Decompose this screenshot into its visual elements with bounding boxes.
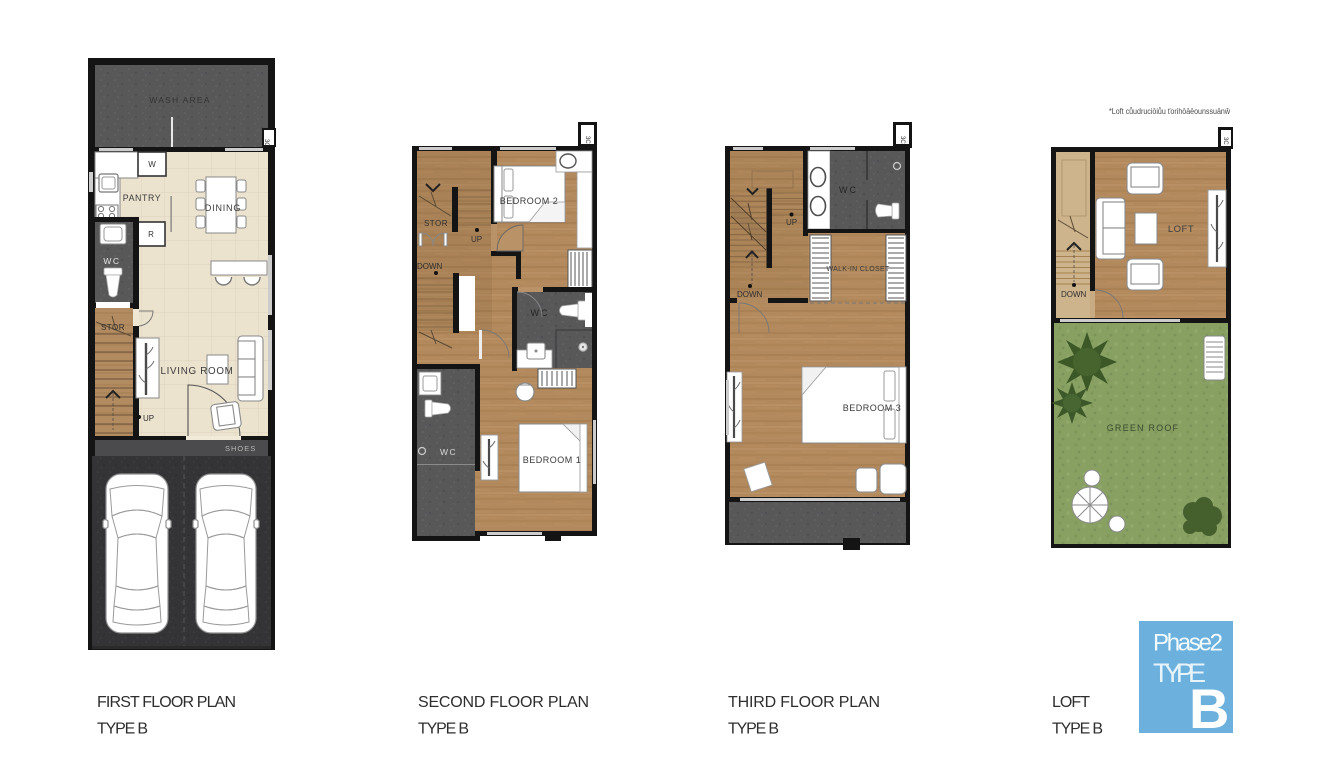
svg-text:W: W — [148, 160, 156, 169]
svg-text:UP: UP — [143, 414, 154, 423]
svg-text:UP: UP — [786, 218, 797, 227]
svg-text:LIVING ROOM: LIVING ROOM — [160, 366, 233, 377]
svg-text:WASH AREA: WASH AREA — [149, 95, 211, 105]
svg-text:Phase2: Phase2 — [1153, 630, 1223, 657]
svg-text:TYPE B: TYPE B — [97, 721, 148, 738]
svg-text:WALK-IN CLOSET: WALK-IN CLOSET — [826, 266, 889, 273]
svg-text:BEDROOM 3: BEDROOM 3 — [843, 403, 902, 413]
svg-text:TYPE B: TYPE B — [728, 721, 779, 738]
svg-text:3C: 3C — [1222, 137, 1228, 145]
svg-text:FIRST FLOOR PLAN: FIRST FLOOR PLAN — [97, 694, 236, 711]
svg-text:SECOND FLOOR PLAN: SECOND FLOOR PLAN — [418, 694, 589, 711]
svg-text:WC: WC — [103, 256, 120, 266]
svg-text:LOFT: LOFT — [1052, 694, 1090, 711]
svg-text:3C: 3C — [263, 139, 269, 147]
svg-text:DOWN: DOWN — [737, 290, 763, 299]
svg-text:LOFT: LOFT — [1168, 224, 1194, 235]
svg-text:STOR: STOR — [424, 219, 448, 228]
svg-text:DINING: DINING — [205, 203, 241, 213]
svg-text:TYPE B: TYPE B — [1052, 721, 1103, 738]
svg-text:STOR: STOR — [101, 323, 125, 332]
svg-text:DOWN: DOWN — [417, 262, 443, 271]
svg-text:DOWN: DOWN — [1061, 290, 1087, 299]
svg-text:B: B — [1189, 677, 1229, 740]
svg-text:*Loft cůudruciōiůu ťorihōāēoun: *Loft cůudruciōiůu ťorihōāēounssuānŵ — [1109, 107, 1230, 116]
svg-text:GREEN ROOF: GREEN ROOF — [1107, 423, 1180, 433]
svg-text:UP: UP — [471, 235, 482, 244]
svg-text:THIRD FLOOR PLAN: THIRD FLOOR PLAN — [728, 694, 880, 711]
svg-text:TYPE B: TYPE B — [418, 721, 469, 738]
svg-text:WC: WC — [839, 185, 858, 195]
svg-text:SHOES: SHOES — [225, 444, 256, 453]
svg-text:WC: WC — [531, 308, 550, 318]
svg-text:3C: 3C — [584, 136, 590, 144]
svg-text:3C: 3C — [899, 136, 905, 144]
svg-text:WC: WC — [440, 447, 457, 457]
svg-text:BEDROOM 1: BEDROOM 1 — [523, 455, 582, 465]
svg-text:BEDROOM 2: BEDROOM 2 — [500, 196, 559, 206]
svg-text:R: R — [148, 230, 154, 239]
svg-text:PANTRY: PANTRY — [123, 193, 161, 203]
